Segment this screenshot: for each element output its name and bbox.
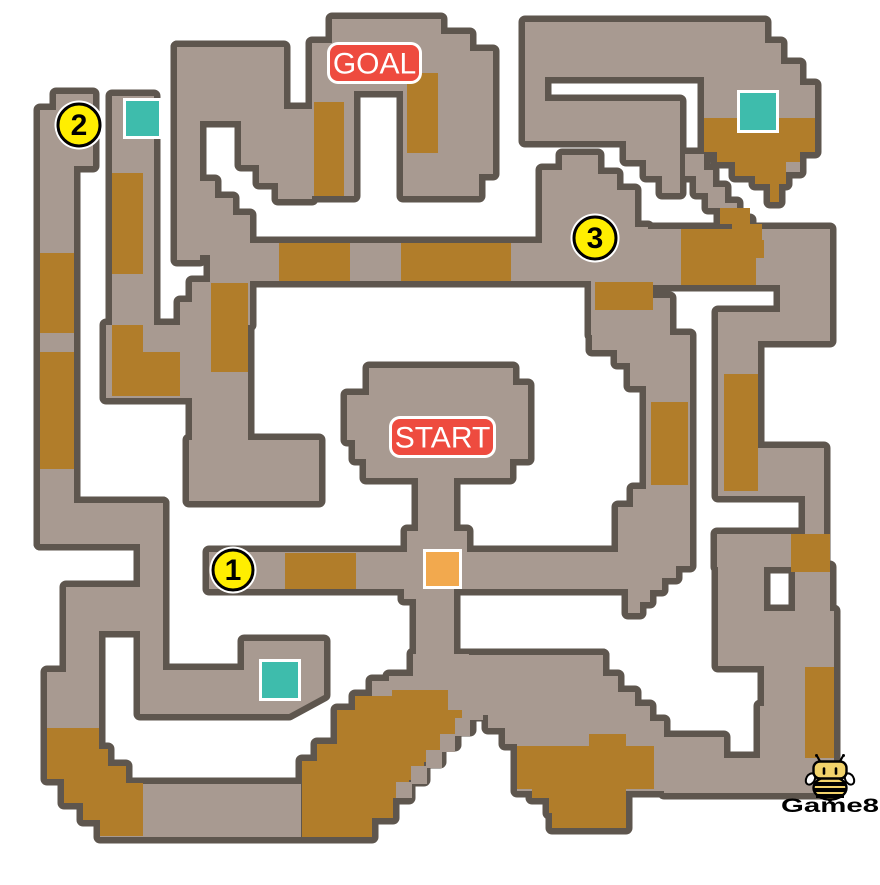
svg-text:GOAL: GOAL xyxy=(333,48,416,81)
svg-text:Game8: Game8 xyxy=(781,796,879,817)
svg-text:1: 1 xyxy=(225,554,242,587)
svg-text:3: 3 xyxy=(587,222,604,255)
svg-text:START: START xyxy=(395,422,491,455)
svg-text:2: 2 xyxy=(71,109,88,142)
